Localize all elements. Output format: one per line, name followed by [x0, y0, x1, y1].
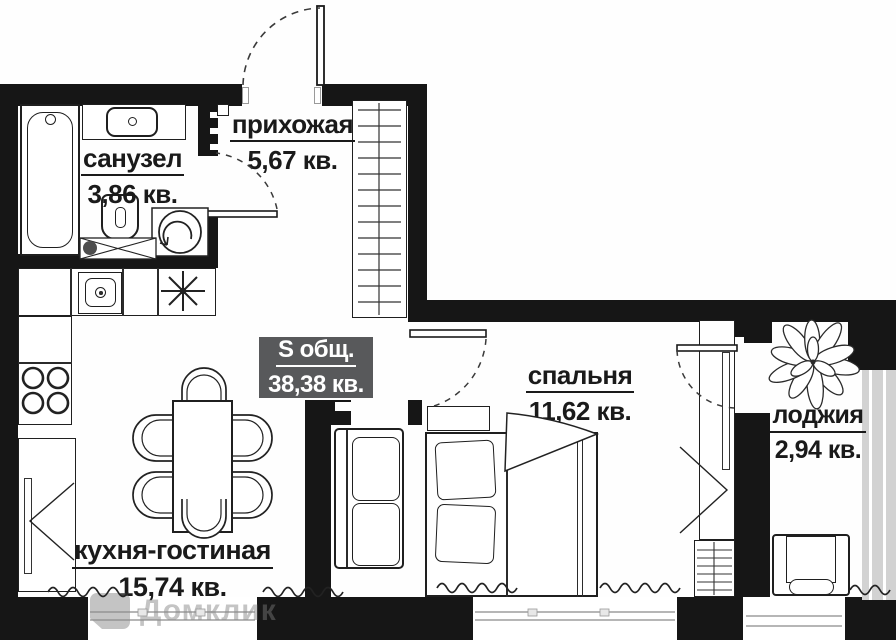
room-name: кухня-гостиная [72, 536, 273, 569]
total-area-box: S общ. 38,38 кв. [259, 337, 373, 398]
wall [408, 84, 427, 322]
toilet-flush [115, 207, 126, 228]
room-area: 3,86 кв. [55, 180, 210, 209]
kitchen-counter-left [18, 316, 72, 425]
counter-divider [157, 268, 159, 316]
wall [848, 300, 896, 370]
wall [0, 597, 88, 640]
floorplan: санузел 3,86 кв. прихожая 5,67 кв. кухня… [0, 0, 896, 640]
armchair-seat [786, 536, 836, 583]
room-label-loggia: лоджия 2,94 кв. [756, 402, 880, 464]
total-area-label: S общ. [276, 336, 356, 367]
blanket-edge [582, 432, 583, 597]
door-jamb [314, 87, 321, 104]
wall-notch [335, 402, 351, 411]
room-area: 5,67 кв. [215, 146, 370, 175]
pillow [435, 439, 497, 500]
counter-divider [18, 362, 72, 364]
window [473, 597, 677, 640]
wall [257, 597, 473, 640]
bed-line [506, 432, 508, 597]
armchair-cushion [789, 579, 834, 595]
blanket-edge [577, 432, 578, 597]
room-name: прихожая [230, 110, 355, 142]
dining-table [172, 400, 233, 533]
watermark: Домклик [90, 593, 277, 629]
room-label-bathroom: санузел 3,86 кв. [55, 144, 210, 208]
sofa-cushion [352, 503, 400, 566]
wall [408, 400, 422, 425]
sink-drain-dot [99, 291, 103, 295]
nightstand [427, 406, 490, 431]
sofa-cushion [352, 437, 400, 501]
sofa-back-line [346, 430, 348, 567]
wall [408, 300, 735, 322]
door-jamb [242, 87, 249, 104]
entrance-door [243, 6, 324, 85]
room-area: 2,94 кв. [756, 437, 880, 465]
bedroom-door [410, 330, 486, 406]
wardrobe-door-panel [24, 478, 32, 574]
room-name: спальня [526, 361, 635, 393]
sink-drain-icon [128, 117, 137, 126]
wardrobe-door-panel [722, 352, 730, 470]
wall [677, 597, 743, 640]
dresser [694, 540, 735, 597]
watermark-text: Домклик [140, 594, 277, 628]
room-name: санузел [81, 144, 184, 176]
plant-icon [766, 319, 860, 410]
wall-notch [735, 337, 744, 344]
wall [305, 400, 331, 597]
room-area: 11,62 кв. [500, 397, 660, 426]
total-area-value: 38,38 кв. [268, 371, 364, 399]
glazing-line [883, 370, 886, 600]
counter-divider [122, 268, 124, 316]
wall [18, 254, 218, 268]
room-label-hallway: прихожая 5,67 кв. [215, 110, 370, 174]
watermark-logo-icon [90, 593, 130, 629]
pillow [435, 504, 496, 565]
wall [845, 597, 896, 640]
loggia-window [743, 597, 845, 640]
room-label-bedroom: спальня 11,62 кв. [500, 361, 660, 425]
wall [0, 84, 18, 640]
bathtub-drain [45, 114, 56, 125]
counter-divider [70, 268, 72, 316]
room-name: лоджия [770, 402, 865, 433]
